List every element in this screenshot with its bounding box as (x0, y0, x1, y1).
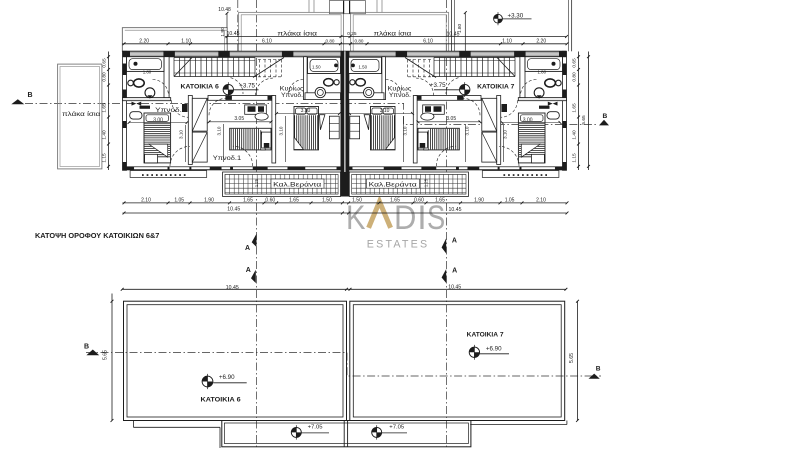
svg-text:2.20: 2.20 (139, 39, 149, 45)
svg-text:1.05: 1.05 (174, 198, 184, 204)
svg-text:Καλ.Βεράντα: Καλ.Βεράντα (369, 181, 418, 188)
svg-text:0.60: 0.60 (265, 198, 275, 204)
svg-text:6.10: 6.10 (262, 39, 272, 45)
svg-text:S: S (427, 199, 445, 237)
svg-text:Υπνοδ.: Υπνοδ. (281, 92, 303, 99)
svg-text:1.25: 1.25 (424, 178, 429, 187)
svg-text:5.65: 5.65 (569, 353, 575, 363)
svg-text:2.20: 2.20 (536, 39, 546, 45)
svg-text:A: A (452, 267, 457, 274)
svg-text:πλάκα ίσια: πλάκα ίσια (277, 30, 317, 38)
svg-text:I: I (417, 199, 426, 237)
svg-text:3.10: 3.10 (217, 126, 222, 135)
svg-text:3.10: 3.10 (503, 130, 508, 139)
svg-text:1.80: 1.80 (457, 24, 463, 34)
svg-text:1.10: 1.10 (502, 39, 512, 45)
svg-text:1.40: 1.40 (571, 130, 577, 140)
svg-text:10.45: 10.45 (449, 207, 462, 213)
svg-text:ΚΑΤΟΙΚΙΑ 6: ΚΑΤΟΙΚΙΑ 6 (201, 396, 242, 403)
svg-text:ΚΑΤΟΙΚΙΑ 6: ΚΑΤΟΙΚΙΑ 6 (181, 83, 220, 90)
svg-text:3.10: 3.10 (301, 108, 311, 114)
svg-text:D: D (394, 199, 416, 237)
svg-text:Καλ.Βεράντα: Καλ.Βεράντα (273, 181, 322, 188)
svg-text:B: B (603, 113, 608, 120)
svg-text:0.80: 0.80 (326, 39, 335, 44)
svg-text:ΚΑΤΟΨΗ ΟΡΟΦΟΥ ΚΑΤΟΙΚΙΩΝ 6&7: ΚΑΤΟΨΗ ΟΡΟΦΟΥ ΚΑΤΟΙΚΙΩΝ 6&7 (35, 233, 160, 240)
svg-text:+6.90: +6.90 (486, 346, 502, 353)
svg-text:+3.75: +3.75 (239, 83, 255, 90)
svg-text:1.90: 1.90 (474, 198, 484, 204)
svg-text:1.65: 1.65 (289, 198, 299, 204)
svg-text:1.65: 1.65 (571, 103, 577, 113)
svg-text:1.25: 1.25 (254, 178, 259, 187)
svg-text:0.65: 0.65 (571, 58, 577, 68)
svg-text:5.65: 5.65 (103, 350, 109, 360)
svg-text:3.10: 3.10 (380, 108, 390, 114)
svg-text:1.50: 1.50 (312, 64, 321, 69)
svg-text:3.05: 3.05 (446, 116, 456, 122)
svg-text:Υπνοδ.1: Υπνοδ.1 (213, 155, 242, 162)
svg-text:B: B (28, 92, 33, 99)
svg-text:1.65: 1.65 (243, 198, 253, 204)
svg-text:0.60: 0.60 (414, 198, 424, 204)
svg-text:3.00: 3.00 (153, 118, 163, 124)
svg-text:2.10: 2.10 (141, 198, 151, 204)
svg-text:1.50: 1.50 (359, 64, 368, 69)
svg-text:ESTATES: ESTATES (367, 238, 430, 250)
svg-text:1.10: 1.10 (181, 39, 191, 45)
svg-text:10.48: 10.48 (218, 7, 231, 13)
svg-text:1.80: 1.80 (538, 69, 547, 74)
svg-text:0.80: 0.80 (571, 72, 577, 82)
svg-text:1.50: 1.50 (322, 198, 332, 204)
svg-text:A: A (452, 237, 457, 244)
svg-text:1.80: 1.80 (220, 27, 226, 37)
svg-text:10.45: 10.45 (448, 285, 461, 291)
svg-text:ΚΑΤΟΙΚΙΑ 7: ΚΑΤΟΙΚΙΑ 7 (467, 331, 505, 338)
svg-text:1.15: 1.15 (571, 153, 577, 163)
svg-text:+3.30: +3.30 (508, 12, 524, 19)
svg-text:0.25: 0.25 (347, 31, 357, 37)
svg-text:A: A (245, 245, 250, 252)
svg-text:+3.75: +3.75 (430, 82, 446, 89)
svg-text:A: A (246, 267, 251, 274)
svg-text:3.10: 3.10 (403, 126, 408, 135)
svg-text:10.45: 10.45 (227, 31, 240, 37)
svg-text:B: B (84, 343, 89, 350)
svg-text:1.80: 1.80 (143, 69, 152, 74)
svg-text:5.65: 5.65 (581, 115, 587, 125)
svg-text:ΚΑΤΟΙΚΙΑ 7: ΚΑΤΟΙΚΙΑ 7 (477, 84, 515, 91)
svg-text:10.45: 10.45 (227, 206, 240, 212)
svg-text:πλάκα ίσια: πλάκα ίσια (62, 110, 100, 118)
svg-text:0.80: 0.80 (355, 39, 364, 44)
svg-text:+6.90: +6.90 (219, 374, 235, 381)
svg-text:πλάκα ίσια: πλάκα ίσια (374, 30, 412, 38)
svg-text:1.50: 1.50 (352, 198, 362, 204)
svg-text:1.65: 1.65 (390, 198, 400, 204)
svg-text:K: K (346, 199, 366, 237)
svg-text:B: B (596, 365, 601, 372)
svg-text:6.10: 6.10 (423, 39, 433, 45)
svg-text:3.10: 3.10 (178, 130, 183, 139)
svg-text:1.65: 1.65 (435, 198, 445, 204)
svg-text:Υπνοδ.: Υπνοδ. (389, 92, 411, 99)
svg-text:2.10: 2.10 (536, 198, 546, 204)
svg-text:3.10: 3.10 (464, 126, 469, 135)
svg-text:10.45: 10.45 (226, 285, 239, 291)
svg-text:1.05: 1.05 (505, 198, 515, 204)
svg-text:1.90: 1.90 (204, 198, 214, 204)
svg-text:+7.05: +7.05 (389, 425, 405, 431)
svg-text:Υπνοδ.2: Υπνοδ.2 (155, 107, 187, 114)
svg-text:+7.05: +7.05 (308, 425, 324, 431)
svg-text:3.00: 3.00 (523, 118, 533, 124)
svg-text:3.05: 3.05 (234, 116, 244, 122)
svg-text:3.10: 3.10 (279, 126, 284, 135)
